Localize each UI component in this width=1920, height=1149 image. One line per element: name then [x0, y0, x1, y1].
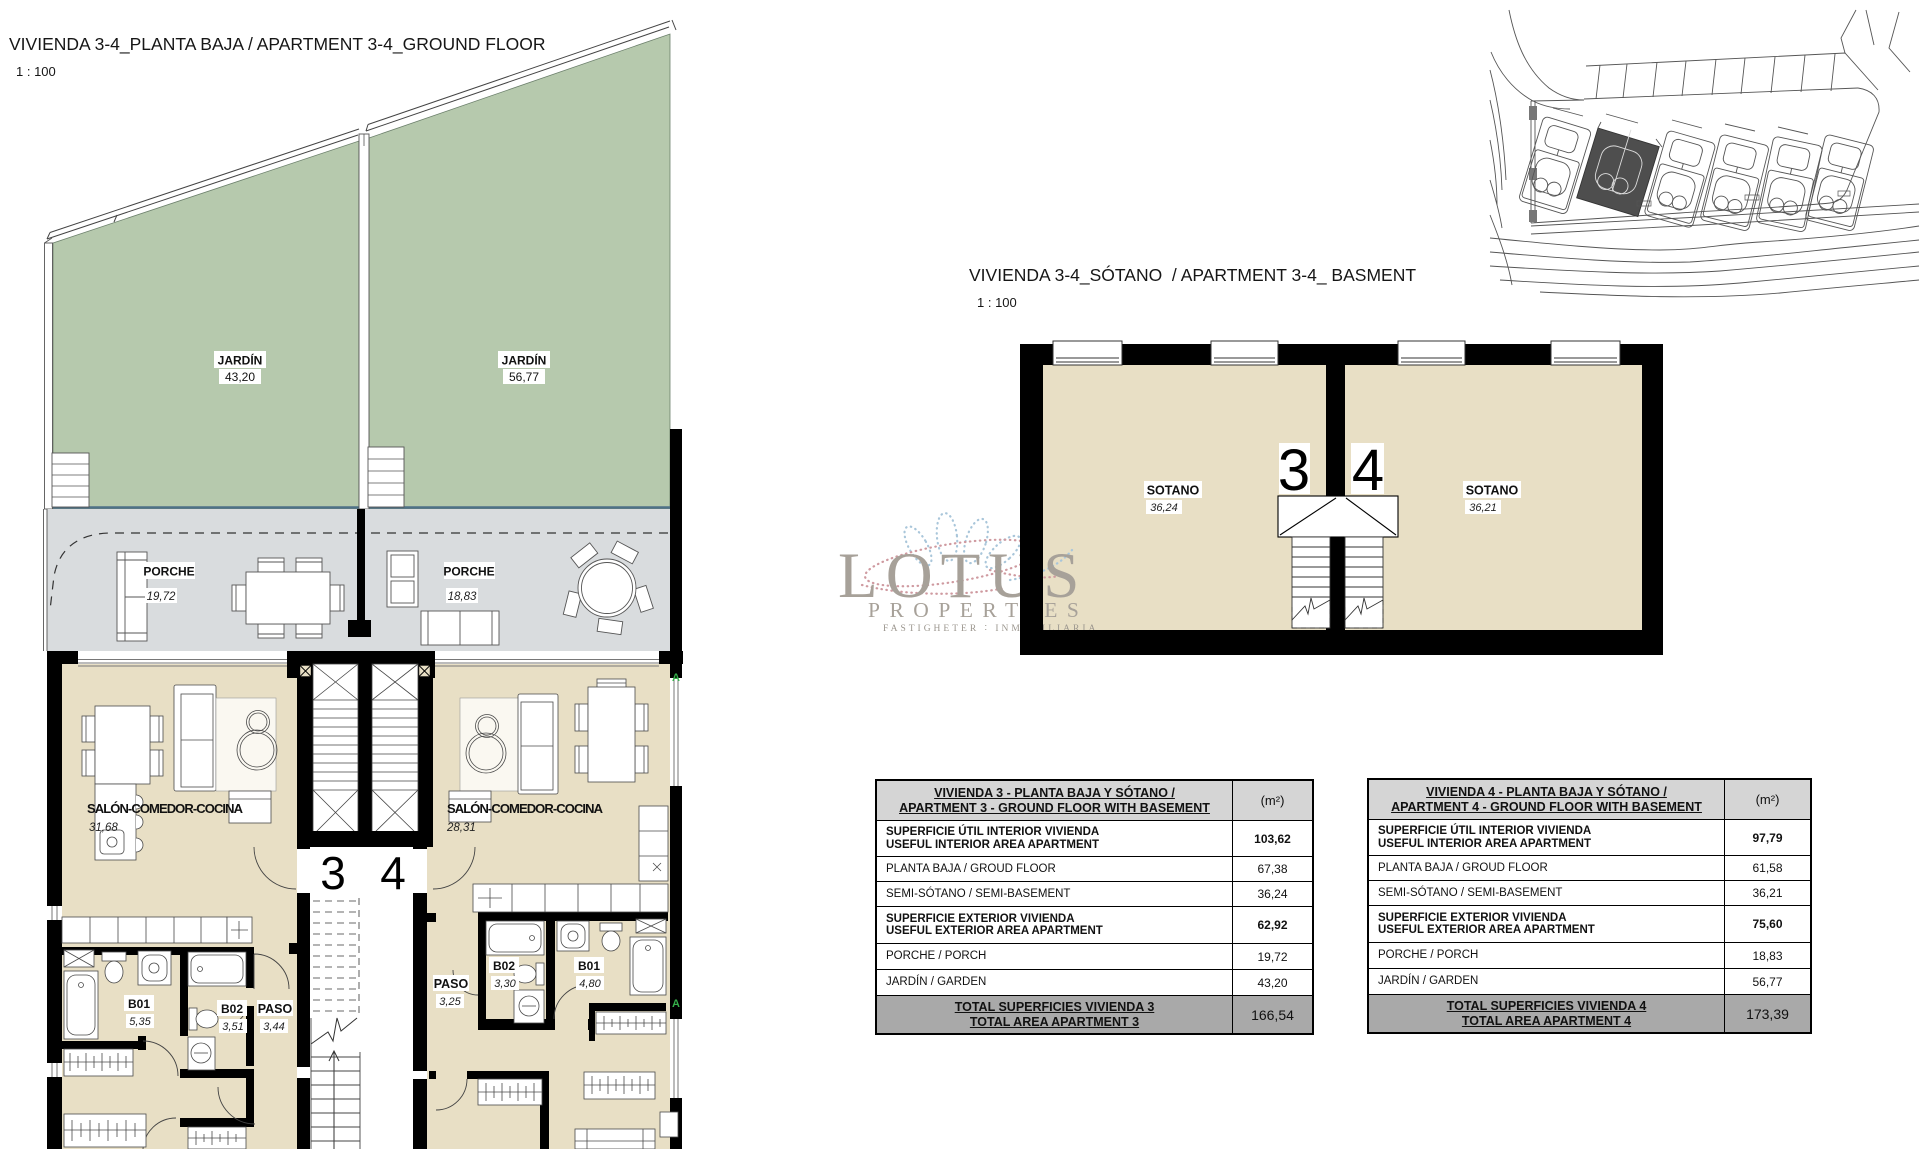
svg-text:JARDÍN: JARDÍN	[218, 353, 263, 368]
svg-text:3,51: 3,51	[222, 1021, 243, 1033]
svg-text:3,44: 3,44	[263, 1021, 284, 1033]
svg-text:A: A	[672, 998, 680, 1010]
svg-text:3: 3	[1278, 438, 1310, 503]
svg-text:SALÓN-COMEDOR-COCINA: SALÓN-COMEDOR-COCINA	[447, 801, 604, 816]
svg-text:B01: B01	[578, 959, 600, 973]
svg-text:4: 4	[380, 847, 406, 899]
svg-text:B02: B02	[221, 1002, 243, 1016]
svg-text:43,20: 43,20	[225, 370, 255, 384]
svg-text:SOTANO: SOTANO	[1466, 484, 1519, 498]
svg-text:PASO: PASO	[258, 1002, 293, 1016]
svg-text:PORCHE: PORCHE	[443, 565, 494, 579]
svg-text:19,72: 19,72	[147, 591, 176, 603]
svg-text:PASO: PASO	[434, 977, 469, 991]
svg-text:B02: B02	[493, 959, 515, 973]
svg-text:4,80: 4,80	[579, 978, 601, 990]
svg-text:3,30: 3,30	[494, 978, 516, 990]
svg-text:SALÓN-COMEDOR-COCINA: SALÓN-COMEDOR-COCINA	[87, 801, 244, 816]
svg-text:3,25: 3,25	[439, 996, 461, 1008]
svg-text:18,83: 18,83	[448, 591, 477, 603]
svg-text:3: 3	[320, 847, 346, 899]
svg-text:A: A	[672, 672, 680, 684]
svg-text:PORCHE: PORCHE	[143, 565, 194, 579]
svg-text:36,24: 36,24	[1150, 502, 1178, 514]
svg-text:36,21: 36,21	[1469, 502, 1497, 514]
svg-text:B01: B01	[128, 997, 150, 1011]
svg-text:4: 4	[1352, 438, 1384, 503]
svg-text:JARDÍN: JARDÍN	[502, 353, 547, 368]
svg-text:28,31: 28,31	[446, 822, 476, 834]
svg-text:PROPERTIES: PROPERTIES	[868, 598, 1088, 622]
svg-text:56,77: 56,77	[509, 370, 539, 384]
svg-text:SOTANO: SOTANO	[1147, 484, 1200, 498]
svg-text:5,35: 5,35	[129, 1016, 151, 1028]
svg-text:31,68: 31,68	[89, 822, 118, 834]
